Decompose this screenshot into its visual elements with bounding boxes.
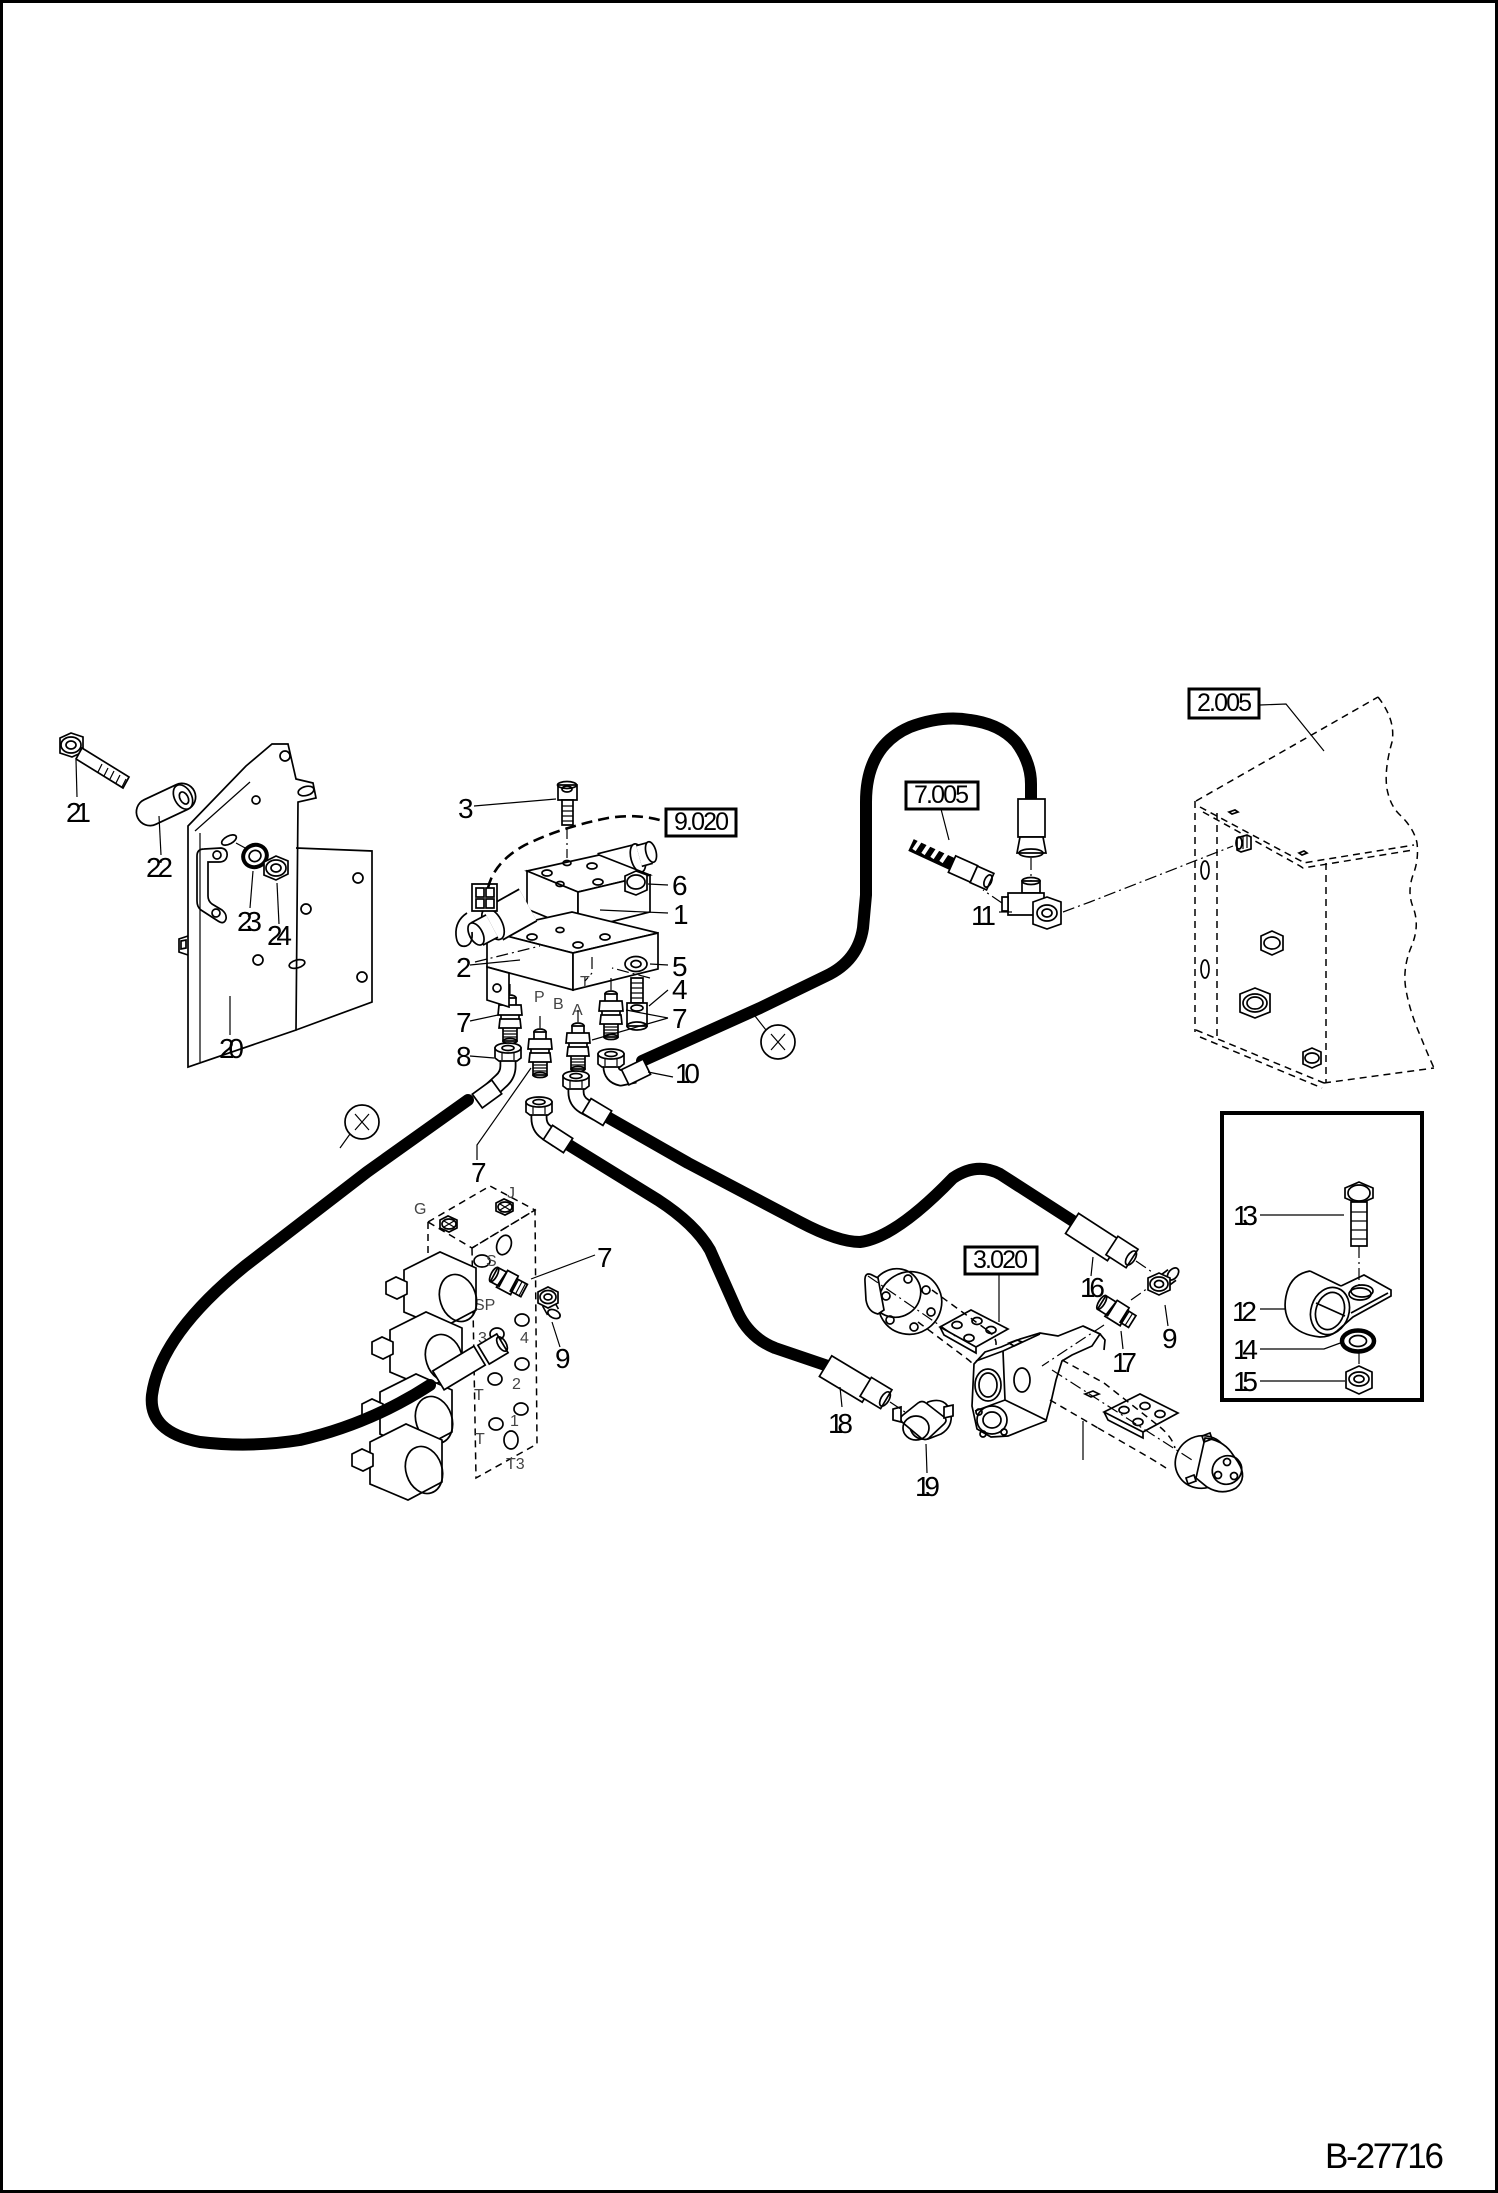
svg-text:3.020: 3.020 (973, 1246, 1028, 1274)
svg-text:1: 1 (510, 1413, 519, 1430)
svg-text:9.020: 9.020 (674, 808, 729, 836)
svg-text:G: G (414, 1201, 426, 1218)
svg-text:10: 10 (675, 1058, 700, 1089)
svg-text:19: 19 (915, 1471, 940, 1502)
svg-text:12: 12 (1232, 1296, 1257, 1327)
svg-text:T: T (474, 1387, 484, 1404)
svg-text:9: 9 (1162, 1323, 1178, 1354)
svg-text:B: B (553, 996, 564, 1013)
svg-text:4: 4 (672, 974, 688, 1005)
svg-text:14: 14 (1233, 1334, 1258, 1365)
svg-text:7: 7 (456, 1007, 472, 1038)
svg-text:7: 7 (672, 1003, 688, 1034)
svg-text:7: 7 (471, 1157, 487, 1188)
svg-text:P: P (534, 989, 545, 1006)
svg-text:15: 15 (1233, 1366, 1258, 1397)
svg-text:17: 17 (1112, 1347, 1137, 1378)
svg-text:6: 6 (672, 870, 688, 901)
svg-text:T3: T3 (506, 1456, 525, 1473)
svg-text:J: J (507, 1185, 515, 1202)
svg-text:1: 1 (673, 899, 689, 930)
svg-text:16: 16 (1080, 1272, 1105, 1303)
svg-text:23: 23 (237, 906, 262, 937)
svg-text:18: 18 (828, 1408, 853, 1439)
svg-text:8: 8 (456, 1041, 472, 1072)
svg-text:2: 2 (512, 1376, 521, 1393)
svg-text:24: 24 (267, 920, 292, 951)
svg-text:11: 11 (971, 900, 996, 931)
svg-text:2.005: 2.005 (1197, 689, 1252, 717)
svg-text:22: 22 (146, 852, 173, 883)
svg-text:4: 4 (520, 1330, 529, 1347)
svg-text:7.005: 7.005 (914, 781, 969, 809)
svg-text:3: 3 (458, 793, 474, 824)
svg-text:21: 21 (66, 797, 91, 828)
svg-text:13: 13 (1233, 1200, 1258, 1231)
svg-text:T: T (475, 1431, 485, 1448)
svg-text:7: 7 (597, 1242, 613, 1273)
svg-text:20: 20 (219, 1033, 244, 1064)
svg-text:9: 9 (555, 1343, 571, 1374)
svg-text:B-27716: B-27716 (1325, 2137, 1444, 2176)
svg-text:2: 2 (456, 952, 472, 983)
svg-text:T: T (580, 974, 590, 991)
